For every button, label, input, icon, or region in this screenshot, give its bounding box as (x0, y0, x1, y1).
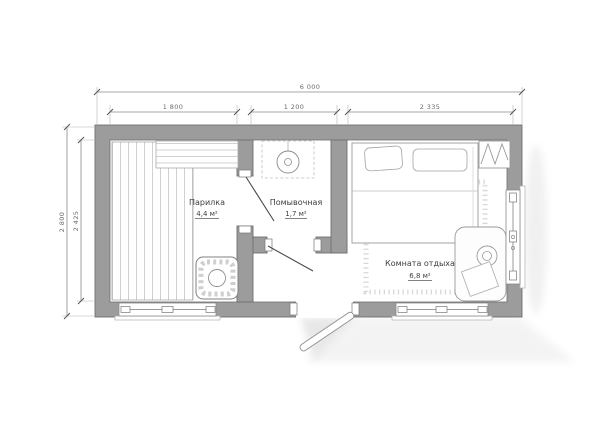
wardrobe-icon (479, 141, 510, 168)
window-bottom-left (115, 303, 220, 320)
dim-total-width: 6 000 (94, 83, 525, 124)
partition-a-bottom (237, 226, 253, 302)
shower-icon (277, 151, 299, 173)
room-area-rest: 6,8 м² (409, 272, 431, 280)
partition-c (331, 140, 347, 253)
dim-label-w1: 1 800 (163, 103, 184, 111)
window-bottom-right (392, 303, 492, 320)
floor-plan-drawing: 6 000 1 800 1 200 2 335 2 800 (0, 0, 600, 438)
room-name-rest: Комната отдыха (385, 259, 455, 268)
door-casing (265, 239, 272, 251)
stove-icon (196, 257, 238, 299)
room-name-washing: Помывочная (270, 198, 323, 207)
door-casing (352, 303, 359, 315)
room-name-steam: Парилка (189, 198, 225, 207)
dim-label-w2: 1 200 (284, 103, 305, 111)
floor-plan-canvas: 6 000 1 800 1 200 2 335 2 800 (0, 0, 600, 438)
upper-bench-planks (156, 141, 238, 168)
door-casing (239, 170, 251, 177)
pillow-icon (413, 149, 467, 171)
door-casing (314, 239, 321, 251)
pillow-icon (364, 146, 403, 172)
table-icon (455, 227, 506, 301)
dim-label-total: 6 000 (300, 83, 321, 91)
door-casing (239, 226, 251, 233)
dim-segments: 1 800 1 200 2 335 (107, 103, 516, 124)
bed-icon (352, 143, 478, 243)
dim-label-h-outer: 2 800 (58, 212, 66, 233)
dim-label-h-inner: 2 425 (72, 211, 80, 232)
dim-inner-depth: 2 425 (72, 137, 94, 304)
shadow-right (525, 145, 547, 315)
room-area-washing: 1,7 м² (285, 210, 307, 218)
window-right (506, 186, 525, 288)
room-area-steam: 4,4 м² (196, 210, 218, 218)
dim-label-w3: 2 335 (420, 103, 441, 111)
door-casing (290, 303, 297, 315)
